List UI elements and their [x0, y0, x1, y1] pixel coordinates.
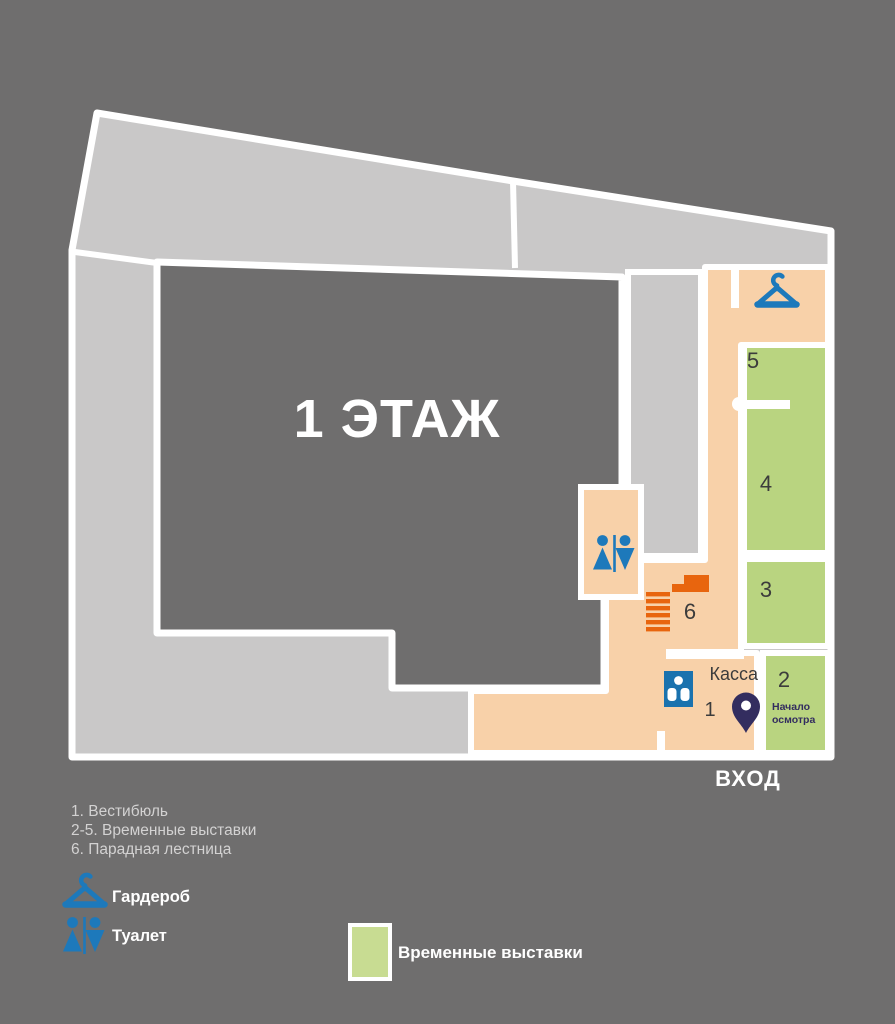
- room-4-number: 4: [755, 473, 777, 495]
- legend-wc-icon: [63, 917, 105, 954]
- entrance-label: ВХОД: [696, 766, 800, 792]
- floor-plan-graphic: [0, 0, 895, 1024]
- wc-room: [581, 487, 641, 597]
- legend-toilet-label: Туалет: [112, 927, 167, 946]
- room-1-number: 1: [699, 700, 721, 720]
- hall-wall: [666, 649, 744, 659]
- museum-floor-plan: 1 ЭТАЖ ВХОД Касса Начало осмотра 1 2 3 4…: [0, 0, 895, 1024]
- legend-item-grand-staircase: 6. Парадная лестница: [71, 840, 231, 859]
- room-3-number: 3: [755, 579, 777, 601]
- band-wall-top: [513, 181, 515, 268]
- room-3: [744, 559, 828, 646]
- vestibule-wall: [657, 731, 665, 753]
- floor-core: [157, 262, 622, 688]
- legend-cloakroom-label: Гардероб: [112, 888, 190, 907]
- cloakroom-wall: [731, 267, 739, 308]
- room-2-number: 2: [773, 669, 795, 691]
- ticket-office-label: Касса: [688, 664, 758, 685]
- door-pivot-dot: [732, 397, 746, 411]
- legend-item-vestibule: 1. Вестибюль: [71, 802, 168, 821]
- room-5-4: [744, 345, 828, 553]
- legend-hanger-icon: [66, 875, 105, 905]
- room-6-number: 6: [679, 601, 701, 623]
- room-5-number: 5: [742, 350, 764, 372]
- legend-item-temporary-exhibitions: 2-5. Временные выставки: [71, 821, 256, 840]
- tour-start-label: Начало осмотра: [772, 701, 828, 726]
- floor-title: 1 ЭТАЖ: [272, 388, 522, 450]
- legend-green-swatch: [348, 923, 392, 981]
- legend-temporary-exhibitions-label: Временные выставки: [398, 943, 583, 963]
